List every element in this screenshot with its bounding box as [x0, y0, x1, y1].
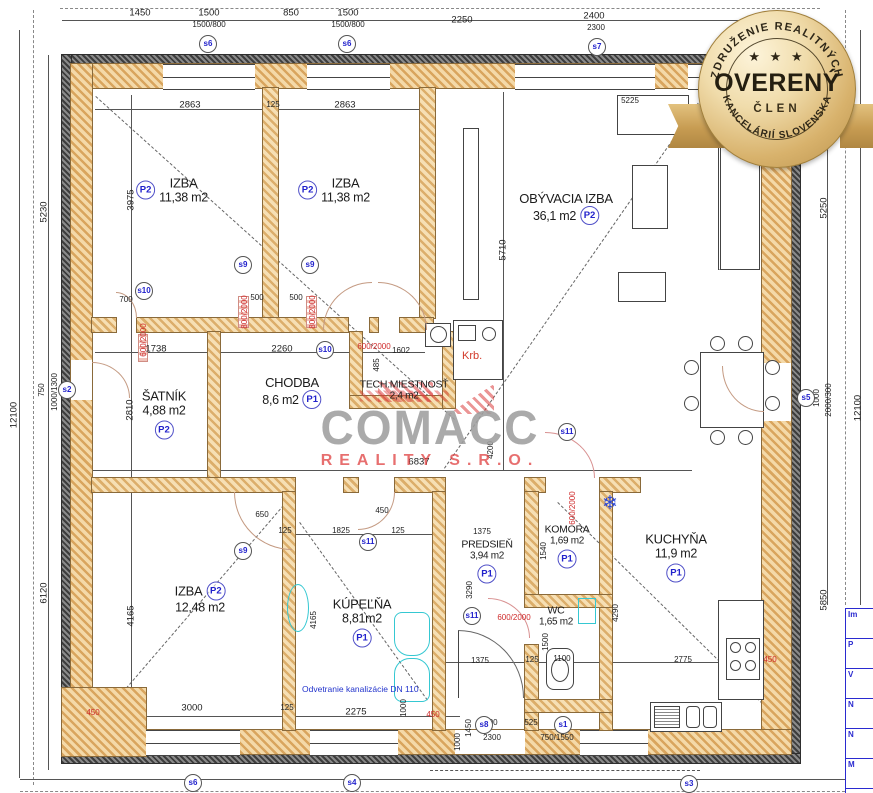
seal-subtitle: ČLEN	[699, 103, 855, 115]
marker-s10: s10	[135, 282, 153, 300]
room-area: 1,65 m2	[539, 617, 573, 628]
dimension-label: 125	[278, 527, 291, 535]
dimension-label: 2260	[271, 344, 292, 354]
floor-plan-canvas: ❄ Odvetranie kanalizácie DN 110 Krb. 145…	[0, 0, 873, 793]
dimension-label: 125	[525, 656, 538, 664]
axis-line-left	[33, 10, 34, 785]
dimension-label: 1602	[392, 347, 410, 355]
class-badge-P1: P1	[478, 565, 497, 584]
room-area: 11,9 m2	[645, 547, 706, 561]
class-badge-P2: P2	[206, 582, 225, 601]
dimension-label: 12100	[853, 395, 863, 421]
bathtub	[394, 658, 430, 702]
dimension-label: 1500	[198, 8, 219, 18]
dimension-label: 2863	[179, 100, 200, 110]
dimension-label: 2300	[587, 24, 605, 32]
dim-chain-bottom	[20, 779, 855, 780]
room-area: 3,94 m2	[461, 551, 512, 562]
class-badge-P2: P2	[154, 421, 173, 440]
room-label-kuchy-a: KUCHYŇA11,9 m2P1	[645, 532, 706, 583]
wall-kupelna-predsien	[433, 492, 445, 730]
class-badge-P2: P2	[580, 206, 599, 225]
dimension-label: 1500/800	[331, 21, 364, 29]
marker-s3: s3	[680, 775, 698, 793]
burner	[730, 660, 741, 671]
room-name: KUCHYŇA	[645, 532, 706, 547]
dimension-label: 2000/300	[825, 383, 833, 416]
dimension-label: 5225	[621, 97, 639, 105]
marker-s6: s6	[199, 35, 217, 53]
chair	[710, 336, 725, 351]
dim-chain-left	[48, 55, 49, 770]
dimension-label: 500	[289, 294, 302, 302]
dimension-label: 6120	[39, 582, 49, 603]
seal-stars: ★ ★ ★	[699, 49, 855, 65]
marker-s11: s11	[359, 533, 377, 551]
dimension-label: 600/2000	[140, 323, 148, 356]
room-label-tech-miestnos-: TECH.MIESTNOSŤ2,4 m2	[360, 379, 449, 402]
room-name: IZBA	[321, 176, 370, 191]
marker-s8: s8	[475, 716, 493, 734]
room-label-k-pe-a: KÚPEĽŇA8,81m2P1	[333, 597, 392, 648]
class-badge-P2: P2	[136, 181, 155, 200]
chair	[738, 430, 753, 445]
wc-sink	[578, 598, 596, 624]
burner	[745, 660, 756, 671]
marker-s5: s5	[797, 389, 815, 407]
cabinet	[632, 165, 668, 229]
room-name: IZBA	[175, 584, 203, 599]
title-block-row: P	[846, 639, 873, 669]
chair	[765, 396, 780, 411]
dimension-label: 1000	[400, 699, 408, 717]
room-label-ob-vacia-izba: OBÝVACIA IZBA36,1 m2P2	[519, 191, 612, 225]
dimension-label: 12100	[9, 402, 19, 428]
room-name: OBÝVACIA IZBA	[519, 191, 612, 206]
chair	[738, 336, 753, 351]
class-badge-P1: P1	[667, 564, 686, 583]
room-label-chodba: CHODBA8,6 m2P1	[262, 375, 321, 409]
dimension-label: 600/2000	[497, 614, 530, 622]
window	[580, 730, 648, 756]
washbasin	[287, 584, 309, 632]
dimension-label: 4165	[126, 605, 136, 626]
dimension-label: 800/2000	[309, 295, 317, 328]
window	[146, 730, 240, 756]
title-block-row: Im	[846, 609, 873, 639]
marker-s6: s6	[338, 35, 356, 53]
door-arc	[323, 282, 372, 330]
title-block-row: N	[846, 729, 873, 759]
room-label-wc: WC1,65 m2	[539, 605, 573, 628]
room-name: ŠATNÍK	[142, 389, 186, 404]
dimension-label: 500	[250, 294, 263, 302]
class-badge-P1: P1	[303, 390, 322, 409]
dimension-label: 125	[280, 704, 293, 712]
wall-predsien-komora	[525, 492, 538, 595]
wall-lower-post	[344, 478, 358, 492]
dimension-label: 450	[763, 656, 776, 664]
coffee-table	[618, 272, 666, 302]
dimension-label: 5250	[819, 197, 829, 218]
title-block-fragment: ImPVNNM	[845, 608, 873, 793]
dimension-label: 2863	[334, 100, 355, 110]
room-area: 2,4 m2	[360, 391, 449, 402]
title-block-row: N	[846, 699, 873, 729]
title-block-row: M	[846, 759, 873, 789]
dimension-label: 4165	[310, 611, 318, 629]
dimension-label: 1825	[332, 527, 350, 535]
marker-s11: s11	[558, 423, 576, 441]
fireplace-label: Krb.	[462, 350, 482, 362]
dimension-label: 3975	[126, 189, 136, 210]
title-block-row: V	[846, 669, 873, 699]
dimension-label: 800/2000	[241, 295, 249, 328]
marker-s1: s1	[554, 716, 572, 734]
marker-s4: s4	[343, 774, 361, 792]
sink-bowl	[686, 706, 700, 728]
room-label-izba: IZBAP212,48 m2	[175, 582, 226, 615]
marker-s9: s9	[301, 256, 319, 274]
chair	[684, 396, 699, 411]
marker-s9: s9	[234, 256, 252, 274]
dimension-label: 750/1550	[540, 734, 573, 742]
wall-wc-bottom	[525, 700, 612, 712]
dimension-label: 1375	[471, 657, 489, 665]
wall-izba2-living	[420, 88, 435, 318]
wall-lower-band	[525, 478, 545, 492]
class-badge-P1: P1	[353, 629, 372, 648]
dim-line-6837	[92, 470, 692, 471]
axis-line-bottom	[20, 791, 850, 792]
chair	[765, 360, 780, 375]
chair	[684, 360, 699, 375]
room-area: 36,1 m2	[533, 209, 576, 223]
room-area: 12,48 m2	[175, 601, 226, 615]
room-name: WC	[539, 605, 573, 617]
dimension-label: 750	[38, 383, 46, 396]
dimension-label: 600/2000	[357, 343, 390, 351]
room-area: 11,38 m2	[159, 191, 208, 205]
washing-machine-drum	[430, 326, 447, 343]
sink-drainer	[654, 706, 680, 728]
dimension-label: 4290	[612, 604, 620, 622]
exterior-wall-left	[62, 55, 71, 763]
dim-line-rooms-top	[95, 109, 425, 110]
marker-s9: s9	[234, 542, 252, 560]
burner	[745, 642, 756, 653]
porch-dashed-line	[430, 770, 700, 771]
corner-pier	[62, 688, 146, 756]
marker-s7: s7	[588, 38, 606, 56]
dimension-label: 485	[373, 358, 381, 371]
seal-title: OVERENÝ	[699, 69, 855, 98]
room-area: 11,38 m2	[321, 191, 370, 205]
dimension-label: 1500	[542, 633, 550, 651]
dimension-label: 450	[86, 709, 99, 717]
room-name: IZBA	[159, 176, 208, 191]
dimension-label: 1375	[473, 528, 491, 536]
dimension-label: 3000	[181, 703, 202, 713]
flue-icon	[482, 327, 496, 341]
dimension-label: 700	[119, 296, 132, 304]
dimension-label: 4200	[487, 441, 495, 459]
dimension-label: 5850	[819, 589, 829, 610]
room-label-predsie-: PREDSIEŇ3,94 m2P1	[461, 539, 512, 584]
window	[163, 64, 255, 90]
tall-window	[463, 128, 479, 300]
dimension-label: 850	[283, 8, 299, 18]
dimension-label: 1450	[465, 719, 473, 737]
dimension-label: 5230	[39, 201, 49, 222]
dimension-label: 1000	[454, 733, 462, 751]
dimension-label: 1738	[145, 344, 166, 354]
wall-mid	[92, 318, 116, 332]
room-name: KÚPEĽŇA	[333, 597, 392, 612]
sink-bowl	[703, 706, 717, 728]
vent-note: Odvetranie kanalizácie DN 110	[302, 684, 419, 694]
room-area: 8,81m2	[333, 612, 392, 626]
fridge-snowflake-icon: ❄	[602, 492, 618, 515]
room-label--atn-k: ŠATNÍK4,88 m2P2	[142, 389, 186, 440]
room-name: PREDSIEŇ	[461, 539, 512, 551]
dimension-label: 1100	[553, 655, 570, 663]
wall-lower-band	[92, 478, 295, 492]
wall-satnik-chodba	[208, 332, 220, 478]
class-badge-P1: P1	[558, 550, 577, 569]
marker-s6: s6	[184, 774, 202, 792]
room-name: KOMORA	[545, 524, 590, 536]
dimension-label: 3290	[466, 581, 474, 599]
marker-s11: s11	[463, 607, 481, 625]
wall-lower-band	[395, 478, 445, 492]
room-label-komora: KOMORA1,69 m2P1	[545, 524, 590, 569]
wall-izba1-izba2	[263, 88, 278, 318]
dimension-label: 450	[375, 507, 388, 515]
room-area: 1,69 m2	[545, 536, 590, 547]
dimension-label: 2275	[345, 707, 366, 717]
dimension-label: 2775	[674, 656, 692, 664]
room-name: TECH.MIESTNOSŤ	[360, 379, 449, 391]
masonry-left	[71, 64, 92, 754]
dimension-label: 6837	[408, 457, 429, 467]
dimension-label: 2250	[451, 15, 472, 25]
certification-seal: ZDRUŽENIE REALITNÝCH KANCELÁRIÍ SLOVENSK…	[668, 4, 873, 174]
window	[310, 730, 398, 756]
dimension-label: 5710	[498, 239, 508, 260]
room-label-izba: P2IZBA11,38 m2	[136, 176, 208, 205]
burner	[730, 642, 741, 653]
room-name: CHODBA	[262, 375, 321, 390]
fireplace-insert	[458, 325, 476, 341]
room-area: 4,88 m2	[142, 404, 186, 418]
seal-coin: ZDRUŽENIE REALITNÝCH KANCELÁRIÍ SLOVENSK…	[698, 10, 856, 168]
chair	[710, 430, 725, 445]
dim-line-5710	[503, 92, 504, 470]
dimension-label: 2400	[583, 11, 604, 21]
entrance-door-arc	[458, 630, 524, 698]
dimension-label: 125	[266, 101, 279, 109]
window	[307, 64, 390, 90]
class-badge-P2: P2	[298, 181, 317, 200]
room-label-izba: P2IZBA11,38 m2	[298, 176, 370, 205]
bathtub	[394, 612, 430, 656]
marker-s10: s10	[316, 341, 334, 359]
dimension-label: 2300	[483, 734, 501, 742]
dim-chain-top	[62, 20, 740, 21]
door-arc	[92, 362, 130, 398]
marker-s2: s2	[58, 381, 76, 399]
dimension-label: 125	[391, 527, 404, 535]
dimension-label: 1500/800	[192, 21, 225, 29]
dimension-label: 2810	[125, 399, 135, 420]
dimension-label: 650	[255, 511, 268, 519]
dimension-label: 600/2000	[569, 491, 577, 524]
dimension-label: 450	[426, 711, 439, 719]
room-area: 8,6 m2	[262, 393, 298, 407]
dimension-label: 1450	[129, 8, 150, 18]
dimension-label: 1500	[337, 8, 358, 18]
wall-lower-band	[600, 478, 640, 492]
dimension-label: 525	[524, 719, 537, 727]
window	[515, 64, 655, 90]
